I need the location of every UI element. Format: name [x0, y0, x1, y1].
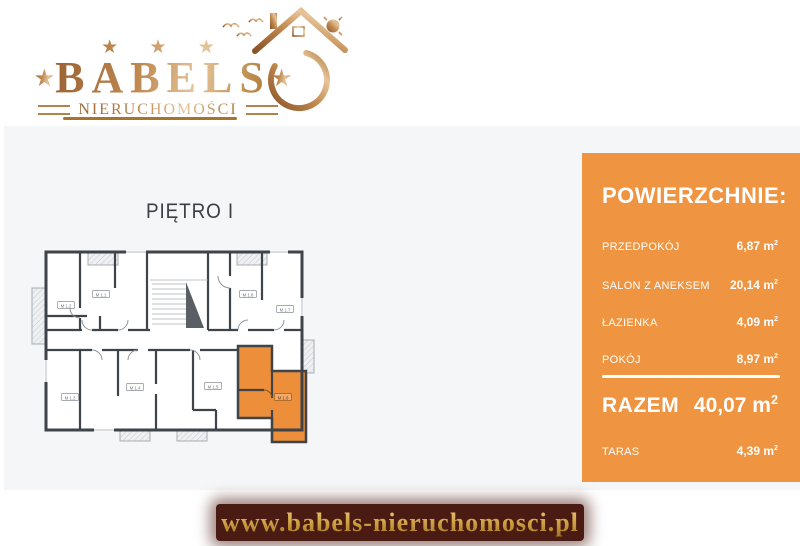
panel-heading: POWIERZCHNIE: — [602, 183, 787, 209]
area-label: POKÓJ — [602, 354, 641, 366]
area-label: TARAS — [602, 446, 639, 458]
birds-icon — [223, 19, 263, 36]
ornament-line — [38, 105, 70, 115]
website-url[interactable]: www.babels-nieruchomosci.pl — [221, 508, 579, 538]
website-banner[interactable]: www.babels-nieruchomosci.pl — [216, 504, 584, 541]
svg-text:M 1.8: M 1.8 — [243, 293, 254, 298]
unit-label[interactable]: M 1.3 — [62, 394, 79, 401]
area-value: 4,39 m2 — [737, 443, 778, 458]
area-value: 8,97 m2 — [737, 351, 778, 366]
house-logo-icon — [213, 3, 368, 131]
unit-label[interactable]: M 1.1 — [93, 291, 110, 298]
area-row: POKÓJ 8,97 m2 — [602, 351, 778, 366]
unit-label[interactable]: M 1.5 — [205, 383, 222, 390]
area-label: SALON Z ANEKSEM — [602, 280, 710, 292]
area-value: 6,87 m2 — [737, 238, 778, 253]
svg-text:M 1.2: M 1.2 — [61, 304, 72, 309]
area-label: PRZEDPOKÓJ — [602, 241, 680, 253]
area-value: 4,09 m2 — [737, 314, 778, 329]
area-row: PRZEDPOKÓJ 6,87 m2 — [602, 238, 778, 253]
star-icon: ★ — [34, 65, 56, 92]
chimney-icon — [270, 13, 277, 29]
unit-label[interactable]: M 1.2 — [58, 302, 75, 309]
floor-title: PIĘTRO I — [132, 200, 249, 224]
total-label: RAZEM — [602, 394, 679, 418]
svg-text:M 1.7: M 1.7 — [280, 308, 291, 313]
window-icon — [293, 27, 304, 36]
unit-label[interactable]: M 1.7 — [277, 306, 294, 313]
area-row: TARAS 4,39 m2 — [602, 443, 778, 458]
page: ★ ★ ★ ★BABELS★ NIERUCHOMOŚCI — [0, 0, 800, 546]
unit-label[interactable]: M 1.8 — [240, 291, 257, 298]
crescent-icon — [271, 53, 327, 108]
area-row: ŁAZIENKA 4,09 m2 — [602, 314, 778, 329]
areas-panel: POWIERZCHNIE: PRZEDPOKÓJ 6,87 m2 SALON Z… — [582, 153, 800, 482]
unit-label-highlighted[interactable]: M 1.6 — [275, 394, 292, 401]
unit-label[interactable]: M 1.4 — [127, 384, 144, 391]
svg-text:M 1.1: M 1.1 — [96, 293, 107, 298]
panel-divider — [602, 375, 780, 378]
svg-text:M 1.5: M 1.5 — [208, 385, 219, 390]
svg-text:M 1.6: M 1.6 — [278, 396, 289, 401]
area-value: 20,14 m2 — [730, 277, 778, 292]
area-label: ŁAZIENKA — [602, 317, 658, 329]
floorplan-image: M 1.1 M 1.2 M 1.3 M 1.4 M 1.5 M 1.6 M 1.… — [26, 248, 318, 448]
logo-underline — [63, 117, 237, 120]
total-row: RAZEM 40,07 m2 — [602, 393, 778, 418]
total-value: 40,07 m2 — [694, 393, 778, 418]
company-logo: ★ ★ ★ ★BABELS★ NIERUCHOMOŚCI — [8, 0, 368, 140]
area-row: SALON Z ANEKSEM 20,14 m2 — [602, 277, 778, 292]
svg-text:M 1.4: M 1.4 — [130, 386, 141, 391]
svg-text:M 1.3: M 1.3 — [65, 396, 76, 401]
